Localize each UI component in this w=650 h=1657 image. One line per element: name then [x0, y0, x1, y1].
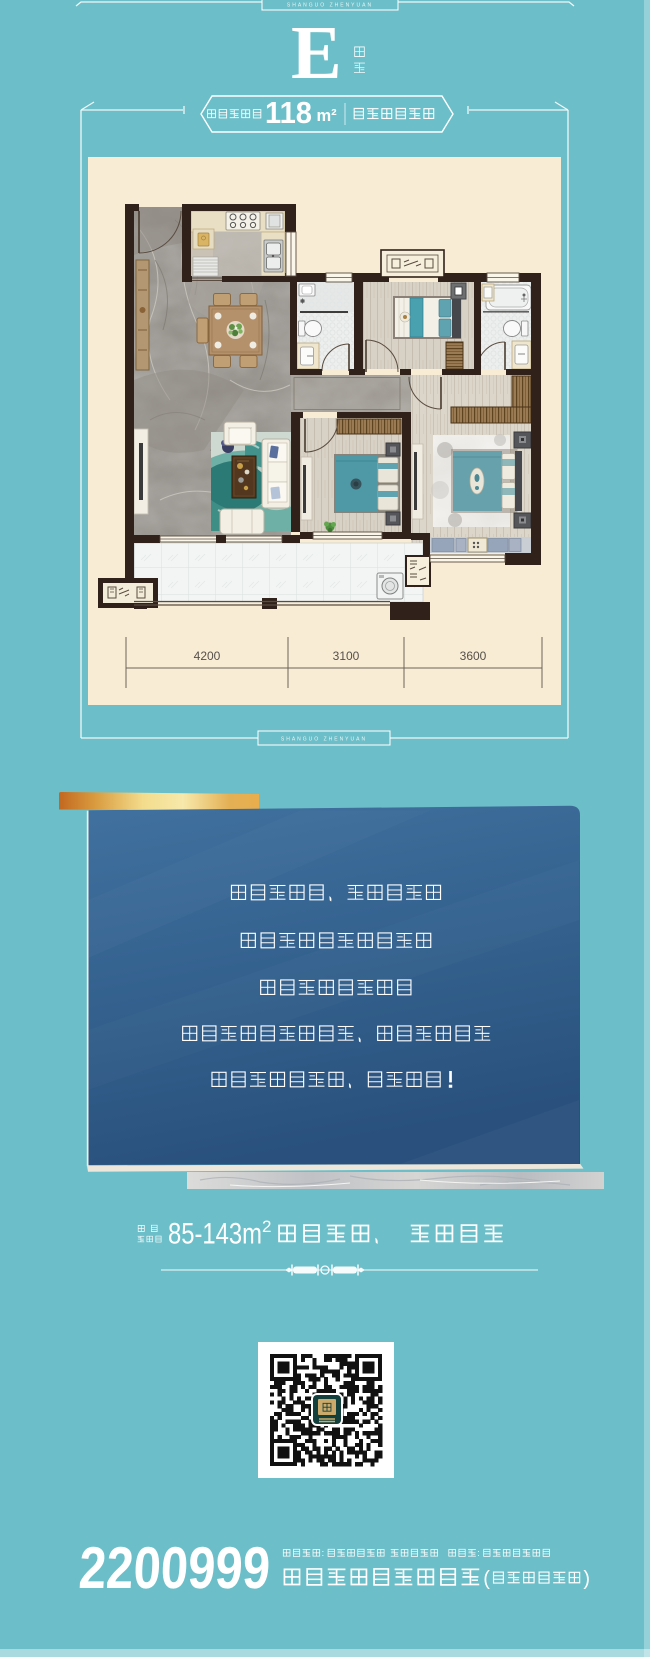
svg-text:2200999: 2200999 — [77, 1535, 271, 1601]
svg-text::: : — [477, 1548, 480, 1558]
svg-text:m²: m² — [317, 107, 338, 125]
svg-text:4200: 4200 — [194, 649, 221, 663]
svg-text:3600: 3600 — [460, 649, 487, 663]
svg-text:2: 2 — [262, 1217, 271, 1236]
svg-text:3100: 3100 — [333, 649, 360, 663]
svg-text:85-143m: 85-143m — [168, 1218, 262, 1251]
svg-text:E: E — [291, 11, 342, 95]
svg-text:SHANGUO ZHENYUAN: SHANGUO ZHENYUAN — [281, 737, 367, 743]
svg-text:SHANGUO ZHENYUAN: SHANGUO ZHENYUAN — [287, 3, 373, 9]
svg-text::: : — [322, 1548, 325, 1558]
svg-text:118: 118 — [265, 95, 312, 130]
svg-text:(: ( — [483, 1568, 490, 1590]
svg-text:): ) — [583, 1568, 590, 1590]
